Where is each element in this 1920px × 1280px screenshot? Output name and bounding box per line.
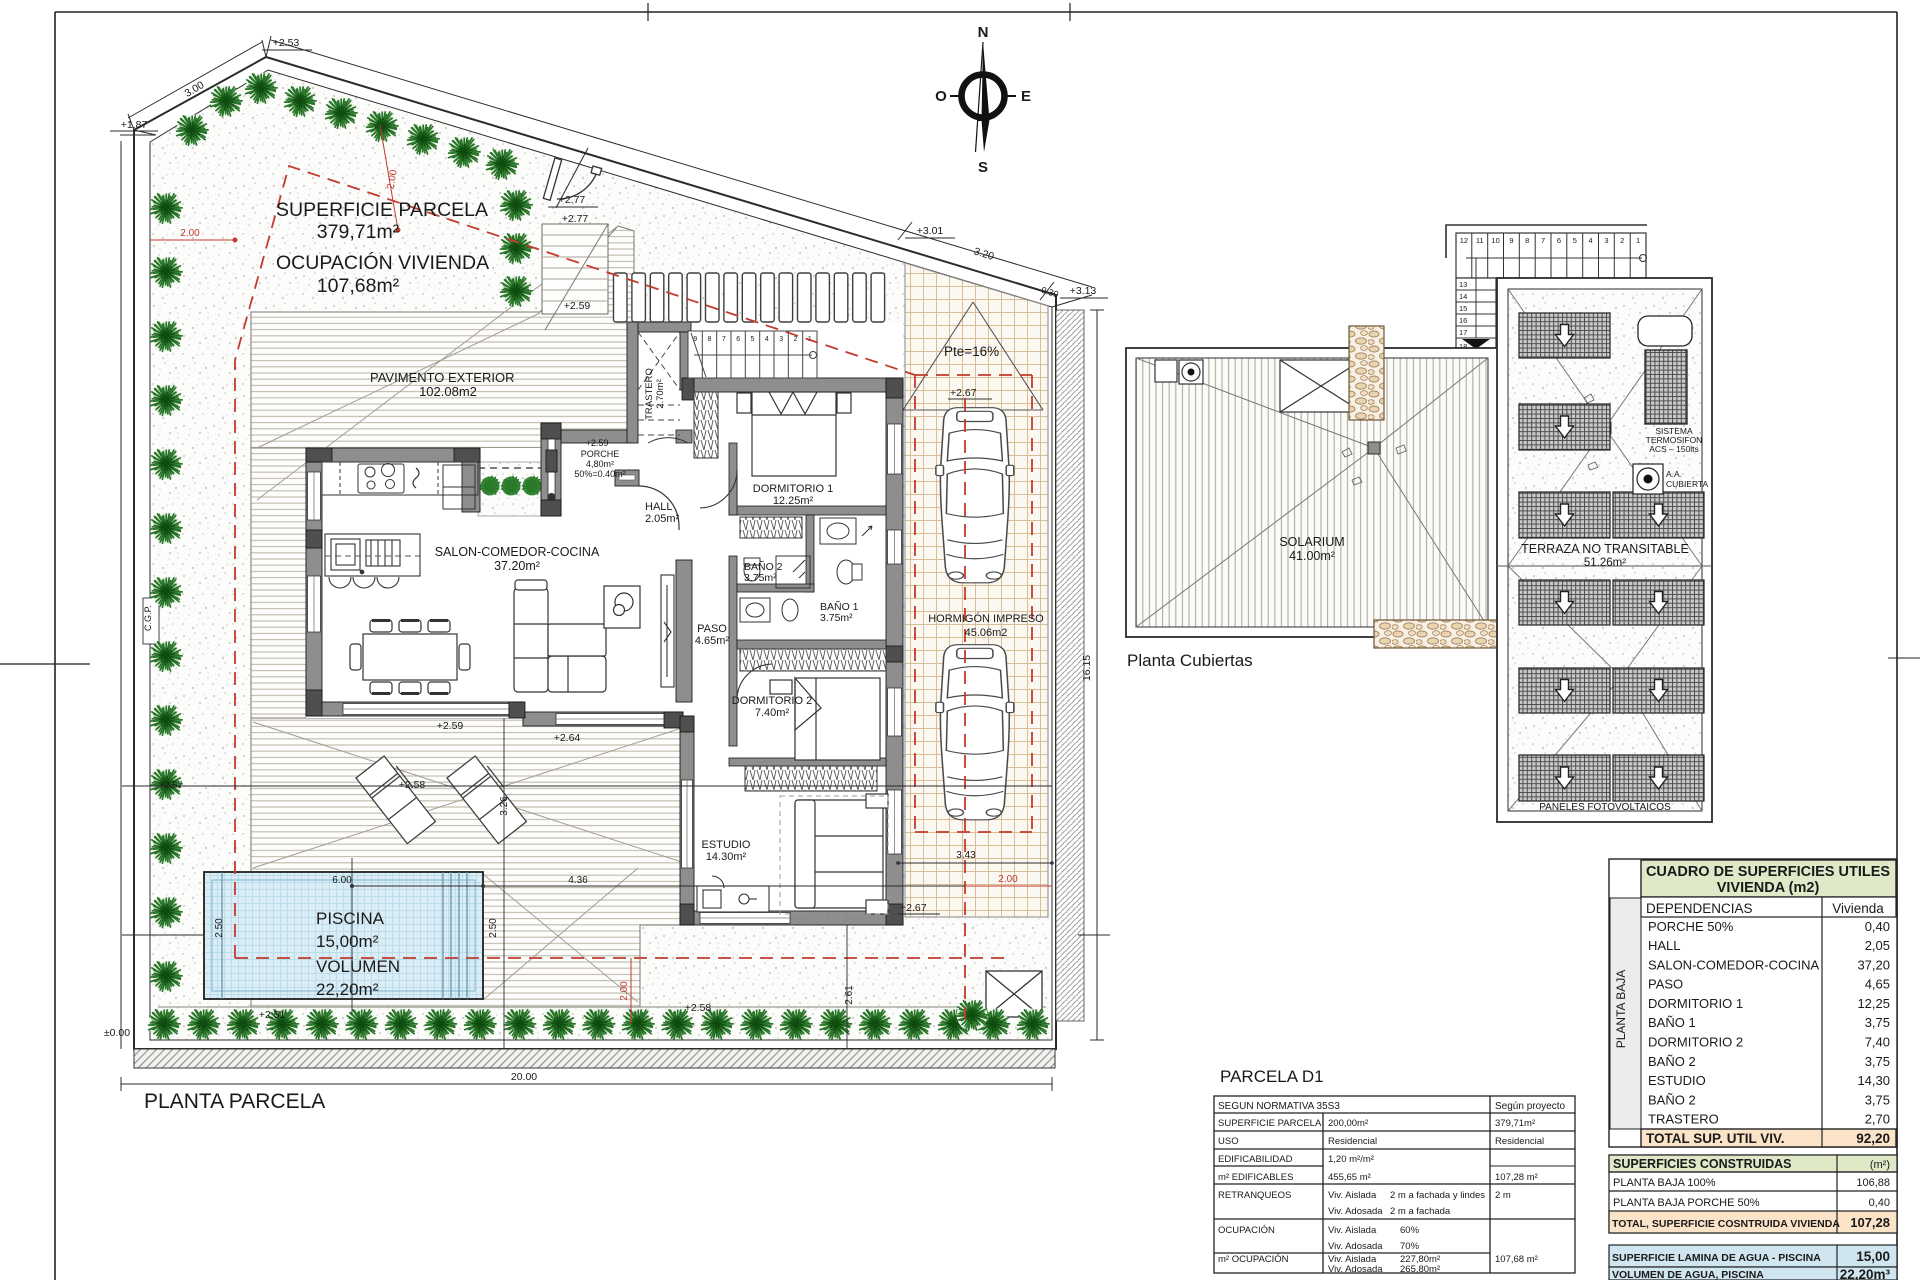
svg-text:OCUPACIÓN VIVIENDA: OCUPACIÓN VIVIENDA [276,251,489,274]
svg-text:SEGUN NORMATIVA 35S3: SEGUN NORMATIVA 35S3 [1218,1101,1340,1112]
svg-text:ESTUDIO: ESTUDIO [1648,1073,1706,1088]
svg-text:3.75m²: 3.75m² [820,612,853,624]
svg-text:12,25: 12,25 [1857,996,1890,1011]
svg-text:Residencial: Residencial [1495,1136,1544,1147]
svg-text:TOTAL, SUPERFICIE COSNTRUIDA V: TOTAL, SUPERFICIE COSNTRUIDA VIVIENDA [1612,1218,1840,1230]
svg-text:7: 7 [1541,236,1545,245]
svg-text:+2.57: +2.57 [160,780,183,790]
svg-text:HALL: HALL [1648,938,1681,953]
svg-text:A.A.: A.A. [1666,469,1682,479]
svg-text:10: 10 [1491,236,1499,245]
svg-text:+3.01: +3.01 [917,225,944,237]
svg-text:22,20m²: 22,20m² [316,980,379,999]
svg-text:DORMITORIO 2: DORMITORIO 2 [1648,1035,1743,1050]
svg-text:PLANTA BAJA PORCHE 50%: PLANTA BAJA PORCHE 50% [1613,1197,1760,1209]
svg-text:Residencial: Residencial [1328,1136,1377,1147]
svg-text:+2.67: +2.67 [900,902,927,914]
svg-text:TOTAL SUP. UTIL VIV.: TOTAL SUP. UTIL VIV. [1646,1131,1785,1146]
svg-text:16.15: 16.15 [1081,655,1093,681]
svg-text:VOLUMEN: VOLUMEN [316,957,400,976]
svg-text:Planta Cubiertas: Planta Cubiertas [1127,651,1253,670]
svg-text:16: 16 [1459,316,1467,325]
svg-text:HALL: HALL [645,501,673,513]
svg-text:1,20 m²/m²: 1,20 m²/m² [1328,1154,1374,1165]
svg-text:+2.53: +2.53 [273,37,300,49]
svg-text:8: 8 [708,336,712,343]
svg-text:Según proyecto: Según proyecto [1495,1101,1565,1112]
svg-text:CUBIERTA: CUBIERTA [1666,479,1709,489]
svg-text:PASO: PASO [697,623,727,635]
svg-text:HORMIGÓN IMPRESO: HORMIGÓN IMPRESO [928,612,1044,625]
svg-text:4: 4 [765,336,769,343]
svg-text:3: 3 [779,336,783,343]
svg-text:2.61: 2.61 [844,985,855,1005]
svg-text:9: 9 [1509,236,1513,245]
svg-text:3.26: 3.26 [499,796,510,816]
svg-text:4.36: 4.36 [568,875,588,886]
svg-text:15,00: 15,00 [1856,1249,1890,1264]
svg-text:13: 13 [1459,280,1467,289]
svg-text:0.30: 0.30 [1040,285,1060,300]
svg-text:51.26m²: 51.26m² [1584,557,1626,569]
svg-text:5: 5 [751,336,755,343]
svg-text:107,68 m²: 107,68 m² [1495,1254,1538,1265]
svg-text:106,88: 106,88 [1856,1177,1890,1189]
svg-text:RETRANQUEOS: RETRANQUEOS [1218,1190,1291,1201]
svg-text:15,00m²: 15,00m² [316,932,379,951]
svg-text:14,30: 14,30 [1857,1073,1890,1088]
svg-text:CUADRO DE SUPERFICIES UTILES: CUADRO DE SUPERFICIES UTILES [1646,864,1890,880]
svg-text:PLANTA PARCELA: PLANTA PARCELA [144,1090,325,1113]
svg-text:BAÑO 2: BAÑO 2 [1648,1054,1696,1069]
svg-text:3.75m²: 3.75m² [744,572,777,584]
svg-text:DEPENDENCIAS: DEPENDENCIAS [1646,901,1753,916]
svg-text:107,28 m²: 107,28 m² [1495,1172,1538,1183]
svg-text:102.08m2: 102.08m2 [419,384,477,399]
svg-text:PORCHE: PORCHE [581,449,620,459]
svg-text:3.20: 3.20 [972,245,995,262]
svg-text:2: 2 [1620,236,1624,245]
svg-text:+2.64: +2.64 [554,732,581,744]
svg-text:2.00: 2.00 [619,981,630,1001]
svg-text:BAÑO 2: BAÑO 2 [1648,1092,1696,1107]
svg-text:Viv. Adosada: Viv. Adosada [1328,1206,1383,1217]
svg-text:+2.59: +2.59 [437,720,464,732]
svg-text:45.06m2: 45.06m2 [965,627,1008,639]
svg-text:+2.58: +2.58 [685,1002,712,1014]
svg-text:2 m a fachada: 2 m a fachada [1390,1206,1451,1217]
svg-text:+2.58: +2.58 [399,779,426,791]
svg-text:41.00m²: 41.00m² [1289,549,1335,563]
svg-text:60%: 60% [1400,1225,1420,1236]
svg-text:4: 4 [1589,236,1593,245]
svg-text:PANELES FOTOVOLTAICOS: PANELES FOTOVOLTAICOS [1539,802,1671,813]
svg-text:PAVIMENTO EXTERIOR: PAVIMENTO EXTERIOR [370,370,514,385]
svg-text:SOLARIUM: SOLARIUM [1279,535,1344,549]
svg-text:3,75: 3,75 [1865,1015,1890,1030]
svg-text:TRASTERO: TRASTERO [1648,1112,1719,1127]
svg-text:2: 2 [794,336,798,343]
svg-text:OCUPACIÓN: OCUPACIÓN [1218,1225,1275,1236]
svg-text:92,20: 92,20 [1856,1131,1890,1146]
svg-text:TERRAZA NO TRANSITABLE: TERRAZA NO TRANSITABLE [1521,542,1689,556]
svg-text:3.43: 3.43 [956,850,976,861]
svg-text:379,71m²: 379,71m² [317,221,400,243]
svg-text:455,65 m²: 455,65 m² [1328,1172,1371,1183]
svg-text:20.00: 20.00 [511,1071,537,1083]
svg-text:0,40: 0,40 [1865,919,1890,934]
svg-text:S: S [978,159,988,176]
svg-text:USO: USO [1218,1136,1239,1147]
svg-text:(m²): (m²) [1870,1159,1890,1171]
svg-text:ESTUDIO: ESTUDIO [702,839,751,851]
svg-text:Vivienda: Vivienda [1832,901,1884,916]
svg-text:N: N [978,24,989,41]
svg-text:8: 8 [1525,236,1529,245]
svg-text:37.20m²: 37.20m² [494,559,540,573]
svg-text:ACS – 150lts: ACS – 150lts [1649,444,1699,454]
svg-text:2,70: 2,70 [1865,1112,1890,1127]
svg-text:PASO: PASO [1648,977,1683,992]
svg-text:PARCELA D1: PARCELA D1 [1220,1067,1324,1086]
svg-text:0,40: 0,40 [1869,1197,1890,1209]
svg-text:2.00: 2.00 [180,228,200,239]
svg-text:15: 15 [1459,304,1467,313]
svg-text:22,20m³: 22,20m³ [1840,1267,1891,1280]
svg-text:Viv. Aislada: Viv. Aislada [1328,1190,1377,1201]
svg-text:12: 12 [1460,236,1468,245]
svg-text:PISCINA: PISCINA [316,909,385,928]
svg-text:2.05m²: 2.05m² [645,513,680,525]
svg-text:PLANTA BAJA: PLANTA BAJA [1614,970,1628,1048]
svg-text:7.40m²: 7.40m² [755,707,790,719]
svg-text:+2.67: +2.67 [950,387,977,399]
svg-text:+2.77: +2.77 [562,213,589,225]
svg-text:37,20: 37,20 [1857,957,1890,972]
svg-text:7,40: 7,40 [1865,1035,1890,1050]
svg-text:4,65: 4,65 [1865,977,1890,992]
svg-text:14.30m²: 14.30m² [706,851,747,863]
svg-text:PLANTA BAJA 100%: PLANTA BAJA 100% [1613,1177,1716,1189]
svg-text:107,68m²: 107,68m² [317,275,400,297]
svg-text:Pte=16%: Pte=16% [944,344,999,359]
svg-text:2,05: 2,05 [1865,938,1890,953]
svg-text:Viv. Aislada: Viv. Aislada [1328,1225,1377,1236]
svg-text:107,28: 107,28 [1850,1215,1890,1230]
svg-text:±0.00: ±0.00 [104,1027,130,1039]
svg-text:DORMITORIO 1: DORMITORIO 1 [753,483,833,495]
svg-text:4,80m²: 4,80m² [586,459,614,469]
svg-text:2 m a fachada y lindes: 2 m a fachada y lindes [1390,1190,1485,1201]
svg-text:17: 17 [1459,328,1467,337]
svg-text:Viv. Adosada: Viv. Adosada [1328,1241,1383,1252]
svg-text:2.50: 2.50 [214,918,225,938]
svg-text:SALON-COMEDOR-COCINA: SALON-COMEDOR-COCINA [1648,957,1820,972]
svg-text:SUPERFICIES CONSTRUIDAS: SUPERFICIES CONSTRUIDAS [1613,1157,1792,1171]
svg-text:+2.59: +2.59 [564,300,591,312]
svg-text:2.50: 2.50 [488,918,499,938]
svg-text:C.G.P.: C.G.P. [143,605,153,631]
svg-text:200,00m²: 200,00m² [1328,1118,1368,1129]
svg-text:SUPERFICIE LAMINA DE AGUA - PI: SUPERFICIE LAMINA DE AGUA - PISCINA [1612,1252,1821,1264]
svg-text:7: 7 [722,336,726,343]
svg-text:2.00: 2.00 [998,874,1018,885]
svg-text:+2.59: +2.59 [586,438,609,448]
svg-text:m² EDIFICABLES: m² EDIFICABLES [1218,1172,1294,1183]
svg-text:EDIFICABILIDAD: EDIFICABILIDAD [1218,1154,1293,1165]
svg-text:O: O [935,88,947,105]
svg-text:PORCHE 50%: PORCHE 50% [1648,919,1734,934]
svg-text:+2.51: +2.51 [259,1009,286,1021]
svg-text:3,75: 3,75 [1865,1054,1890,1069]
svg-text:11: 11 [1476,236,1484,245]
svg-text:265,80m²: 265,80m² [1400,1264,1440,1275]
svg-text:TRASTERO: TRASTERO [644,368,655,420]
svg-text:12.25m²: 12.25m² [773,495,814,507]
svg-text:2 m: 2 m [1495,1190,1511,1201]
svg-text:6: 6 [736,336,740,343]
svg-text:1: 1 [1636,236,1640,245]
svg-text:6: 6 [1557,236,1561,245]
svg-text:DORMITORIO 2: DORMITORIO 2 [732,695,812,707]
svg-text:+2.77: +2.77 [559,194,586,206]
svg-text:3: 3 [1604,236,1608,245]
svg-text:14: 14 [1459,292,1467,301]
svg-text:3,75: 3,75 [1865,1092,1890,1107]
svg-text:SUPERFICIE PARCELA: SUPERFICIE PARCELA [1218,1118,1322,1129]
svg-text:m² OCUPACIÓN: m² OCUPACIÓN [1218,1254,1289,1265]
svg-text:6.00: 6.00 [332,875,352,886]
svg-text:BAÑO 1: BAÑO 1 [1648,1015,1696,1030]
svg-text:70%: 70% [1400,1241,1420,1252]
svg-text:5: 5 [1573,236,1577,245]
svg-text:E: E [1021,88,1031,105]
svg-text:VOLUMEN DE AGUA, PISCINA: VOLUMEN DE AGUA, PISCINA [1612,1269,1764,1280]
svg-text:4.65m²: 4.65m² [695,635,730,647]
svg-text:50%=0.40m²: 50%=0.40m² [574,469,625,479]
svg-text:379,71m²: 379,71m² [1495,1118,1535,1129]
svg-text:VIVIENDA (m2): VIVIENDA (m2) [1717,880,1820,896]
svg-text:+1.87: +1.87 [121,119,148,131]
svg-text:2.70m²: 2.70m² [655,379,666,409]
svg-text:Viv. Adosada: Viv. Adosada [1328,1264,1383,1275]
svg-text:+3.13: +3.13 [1070,285,1097,297]
svg-text:SALON-COMEDOR-COCINA: SALON-COMEDOR-COCINA [435,545,600,559]
svg-text:DORMITORIO 1: DORMITORIO 1 [1648,996,1743,1011]
svg-text:SUPERFICIE PARCELA: SUPERFICIE PARCELA [276,199,488,221]
